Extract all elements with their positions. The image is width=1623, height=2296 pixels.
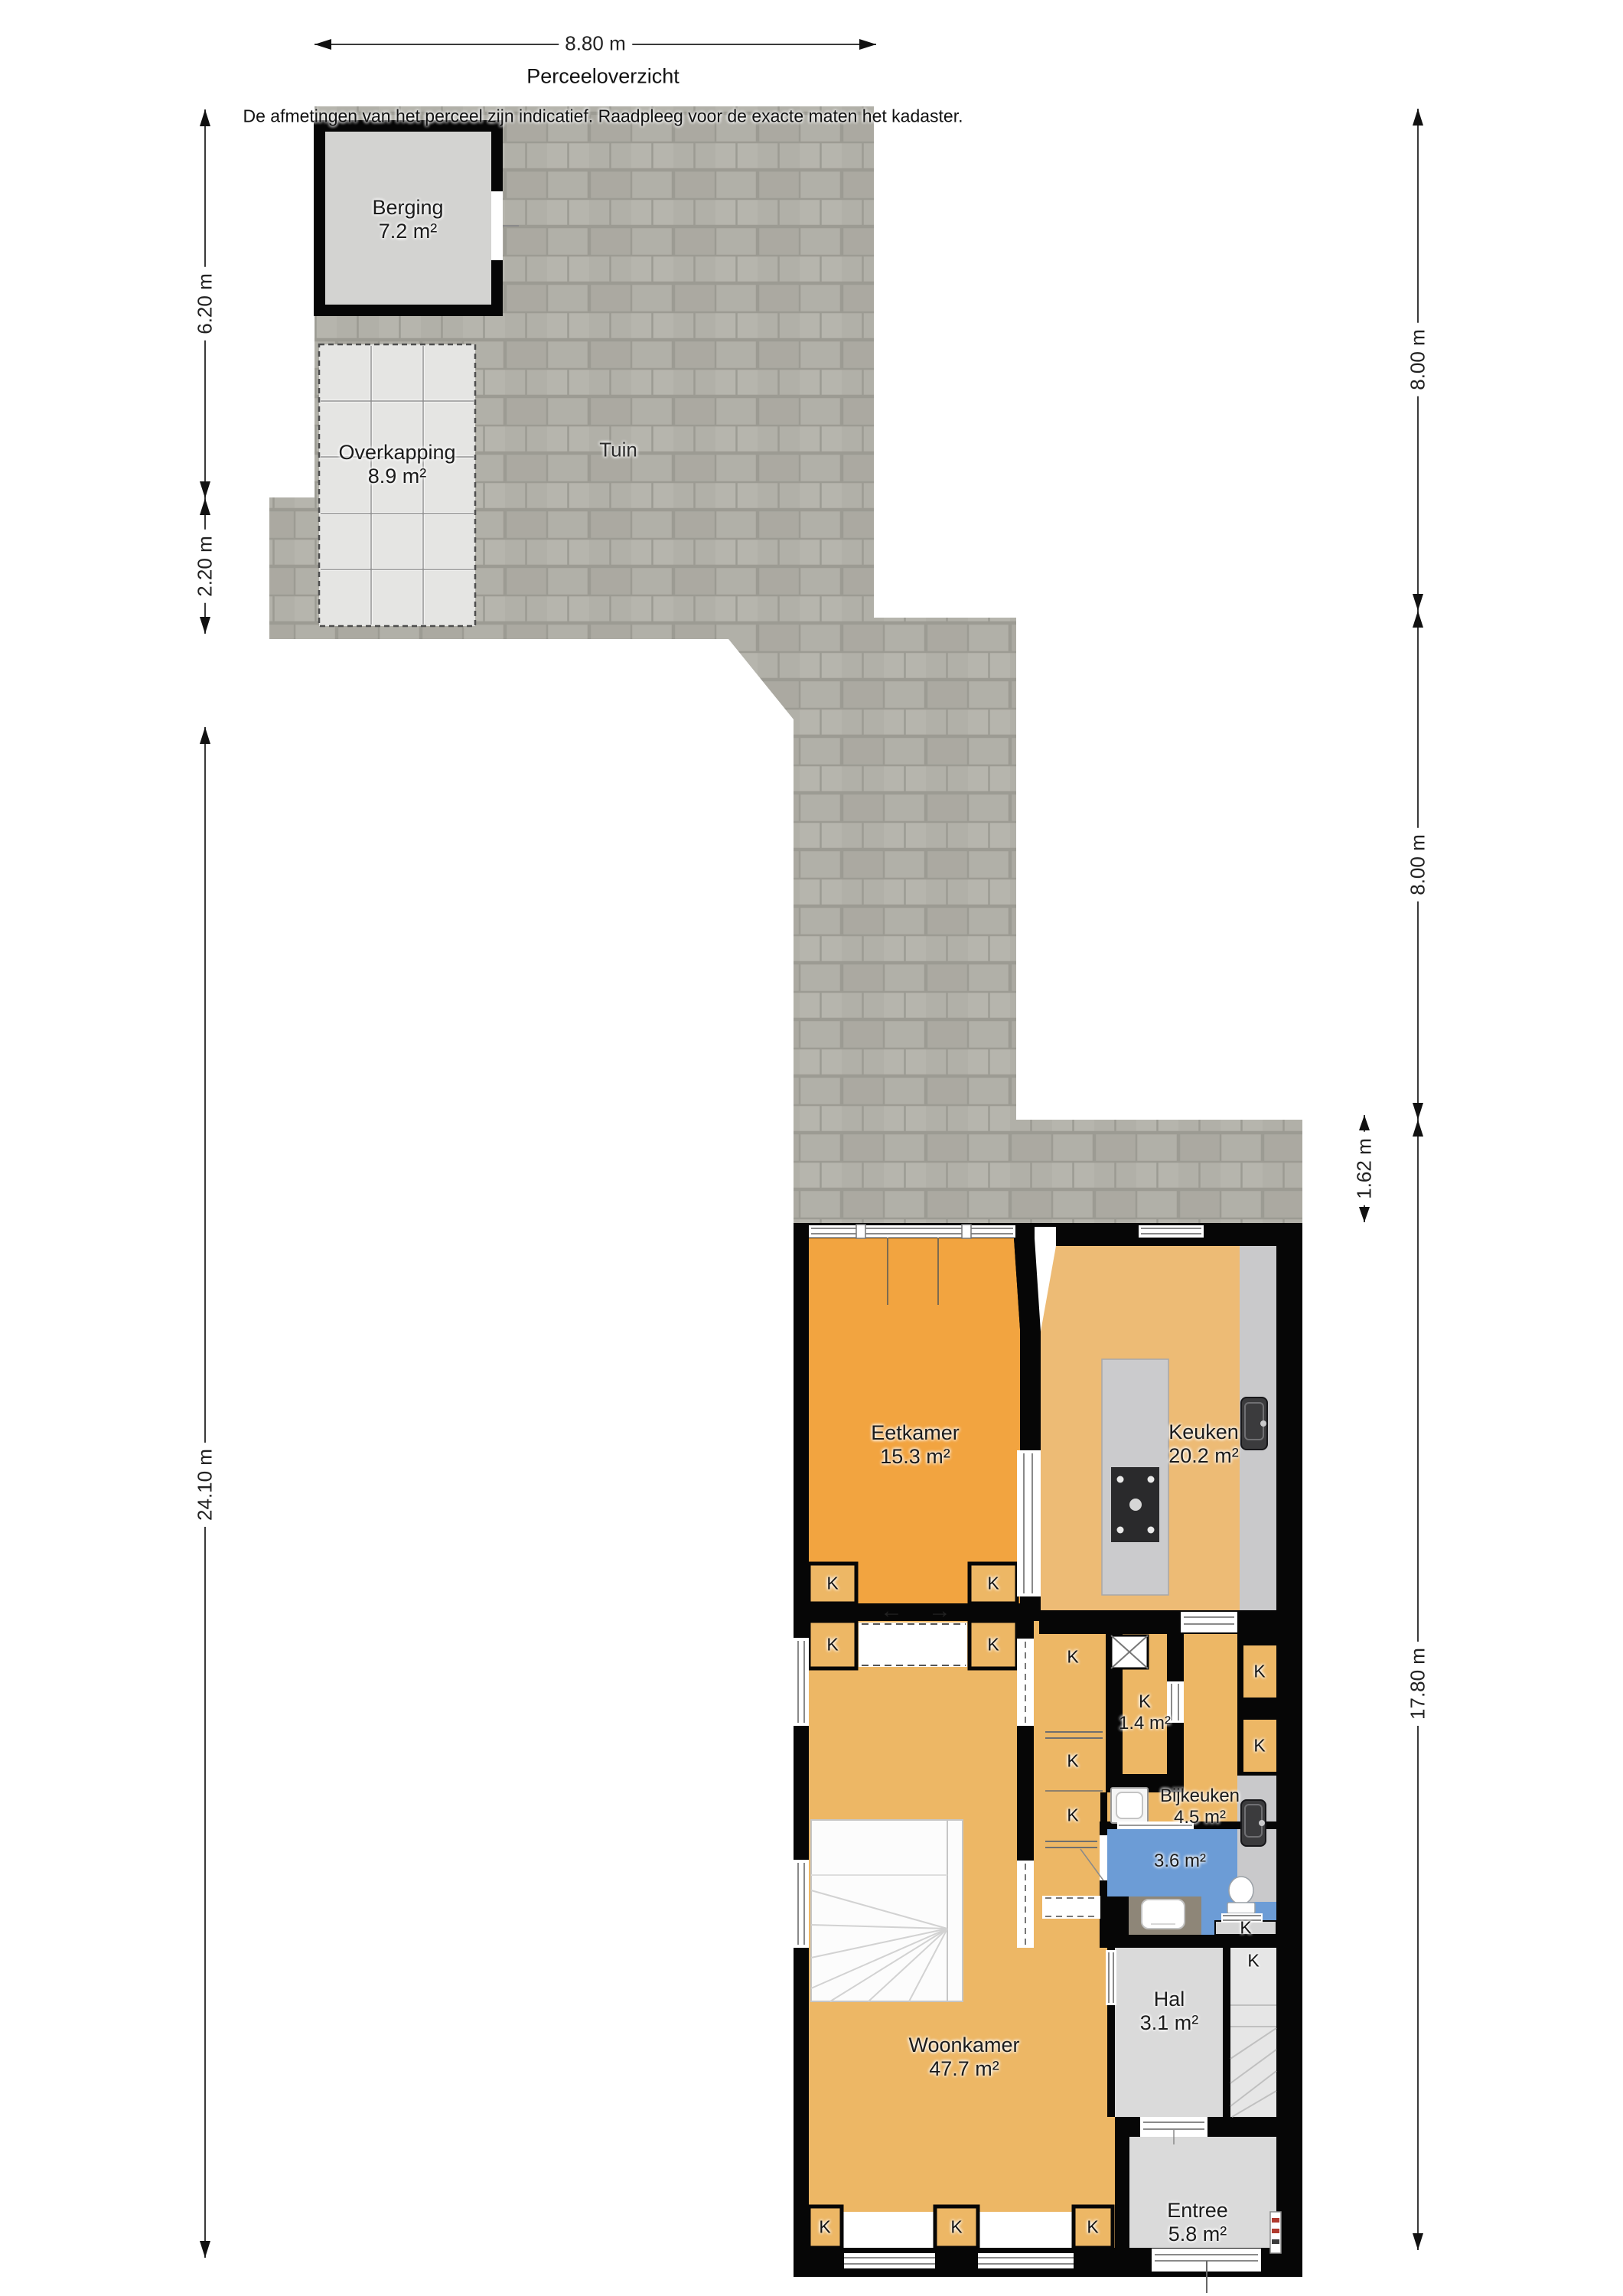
berging-area: 7.2 m²: [372, 220, 443, 243]
kast-name: K: [1119, 1691, 1171, 1713]
washbasin: [1142, 1900, 1185, 1929]
berging-name: Berging: [372, 196, 443, 220]
overkapping-label: Overkapping 8.9 m²: [338, 441, 455, 488]
dimension-right-strip: 1.62 m: [1353, 1132, 1377, 1205]
dimension-right-middle: 8.00 m: [1406, 828, 1430, 902]
eetkamer-name: Eetkamer: [871, 1421, 960, 1445]
dimension-left-total: 24.10 m: [194, 1443, 217, 1527]
bijkeuken-area: 4.5 m²: [1160, 1807, 1240, 1828]
radiator: [1270, 2212, 1281, 2253]
dimension-top-label: 8.80 m: [559, 32, 632, 56]
entree-name: Entree: [1167, 2199, 1228, 2223]
washing-machine: [1111, 1788, 1148, 1823]
hal-label: Hal 3.1 m²: [1140, 1988, 1199, 2035]
closet-marker: K: [950, 2217, 962, 2238]
keuken-area: 20.2 m²: [1168, 1444, 1239, 1468]
bijkeuken-label: Bijkeuken 4.5 m²: [1160, 1786, 1240, 1828]
floorplan-drawing: [0, 0, 1623, 2296]
sliding-door-arrow-left: ←: [880, 1598, 903, 1624]
entree-area: 5.8 m²: [1167, 2223, 1228, 2246]
toilet: [1227, 1877, 1255, 1913]
closet-marker: K: [1067, 1805, 1078, 1826]
duct-shaft: [1111, 1636, 1148, 1668]
woonkamer-name: Woonkamer: [908, 2033, 1019, 2057]
closet-marker: K: [1087, 2217, 1098, 2238]
dimension-left-lower: 2.20 m: [194, 530, 217, 603]
closet-marker: K: [987, 1574, 999, 1594]
eetkamer-area: 15.3 m²: [871, 1445, 960, 1469]
bijkeuken-name: Bijkeuken: [1160, 1786, 1240, 1807]
closet-marker: K: [1240, 1918, 1251, 1939]
woonkamer-label: Woonkamer 47.7 m²: [908, 2033, 1019, 2081]
dimension-right-upper: 8.00 m: [1406, 323, 1430, 396]
dimension-right-house: 17.80 m: [1406, 1642, 1430, 1726]
house-ground-floor: [794, 1223, 1302, 2293]
kast-area: 1.4 m²: [1119, 1713, 1171, 1734]
entree-label: Entree 5.8 m²: [1167, 2199, 1228, 2246]
woonkamer-area: 47.7 m²: [908, 2057, 1019, 2081]
closet-marker: K: [987, 1635, 999, 1655]
utility-sink: [1241, 1800, 1266, 1846]
kitchen-sink: [1241, 1397, 1267, 1450]
keuken-name: Keuken: [1168, 1420, 1239, 1444]
floorplan-page: 8.80 m Perceeloverzicht De afmetingen va…: [0, 0, 1623, 2296]
overkapping-area: 8.9 m²: [338, 465, 455, 488]
closet-marker: K: [826, 1574, 838, 1594]
closet-marker: K: [1247, 1951, 1259, 1971]
keuken-label: Keuken 20.2 m²: [1168, 1420, 1239, 1468]
kast-label: K 1.4 m²: [1119, 1691, 1171, 1734]
closet-marker: K: [1253, 1736, 1265, 1756]
closet-marker: K: [1253, 1662, 1265, 1682]
berging-door: [491, 191, 503, 260]
closet-marker: K: [1067, 1751, 1078, 1772]
eetkamer-label: Eetkamer 15.3 m²: [871, 1421, 960, 1469]
badkamer-label: 3.6 m²: [1154, 1851, 1206, 1872]
page-disclaimer: De afmetingen van het perceel zijn indic…: [243, 106, 963, 127]
dimension-left-upper: 6.20 m: [194, 267, 217, 341]
garden-label: Tuin: [599, 439, 637, 462]
cooktop: [1111, 1467, 1159, 1542]
sliding-door-arrow-right: →: [928, 1598, 951, 1624]
overkapping-name: Overkapping: [338, 441, 455, 465]
hal-area: 3.1 m²: [1140, 2011, 1199, 2035]
page-title: Perceeloverzicht: [526, 65, 680, 89]
staircase-main: [811, 1820, 963, 2001]
hal-name: Hal: [1140, 1988, 1199, 2011]
berging-label: Berging 7.2 m²: [372, 196, 443, 243]
closet-marker: K: [819, 2217, 830, 2238]
closet-marker: K: [826, 1635, 838, 1655]
closet-marker: K: [1067, 1647, 1078, 1668]
